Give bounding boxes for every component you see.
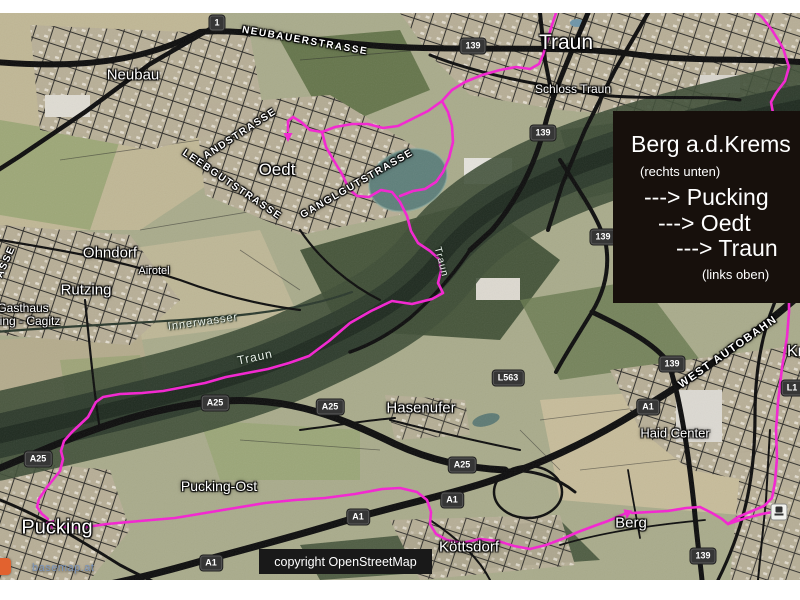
place-label-pucking-ost: Pucking-Ost xyxy=(181,478,257,494)
road-shield-139: 139 xyxy=(590,230,615,245)
route-step-pucking: ---> Pucking xyxy=(644,184,769,211)
road-shield-139: 139 xyxy=(659,357,684,372)
place-label-neubau: Neubau xyxy=(107,67,160,84)
place-label-berg: Berg xyxy=(615,515,647,532)
place-label-rutzing: Rutzing xyxy=(61,282,112,299)
place-label-zing-cagitz: zing - Cagitz xyxy=(0,314,60,328)
place-label-schloss-traun: Schloss Traun xyxy=(535,82,611,96)
route-step-traun: ---> Traun xyxy=(676,235,778,262)
road-shield-1: 1 xyxy=(209,16,224,31)
place-label-pucking: Pucking xyxy=(21,517,92,540)
place-label-oedt: Oedt xyxy=(259,160,296,180)
road-shield-a1: A1 xyxy=(200,556,222,571)
route-description-box: Berg a.d.Krems (rechts unten) ---> Pucki… xyxy=(613,111,800,303)
copyright-banner: copyright OpenStreetMap xyxy=(259,549,432,574)
route-start-title: Berg a.d.Krems xyxy=(631,131,791,158)
road-shield-a1: A1 xyxy=(637,400,659,415)
place-label-airotel: Airotel xyxy=(138,265,169,277)
place-label-traun: Traun xyxy=(539,31,593,55)
road-shield-139: 139 xyxy=(530,126,555,141)
road-shield-139: 139 xyxy=(690,549,715,564)
basemap-attribution-link[interactable]: basemap.at xyxy=(32,562,94,574)
map-canvas[interactable]: InnerwasserTraunTraun NEUBAUERSTRASSELAN… xyxy=(0,13,800,580)
road-shield-l563: L563 xyxy=(493,371,524,386)
train-glyph xyxy=(776,507,783,513)
road-shield-a25: A25 xyxy=(449,458,476,473)
road-shield-139: 139 xyxy=(460,39,485,54)
screenshot-stage: InnerwasserTraunTraun NEUBAUERSTRASSELAN… xyxy=(0,0,800,600)
road-shield-a25: A25 xyxy=(317,400,344,415)
place-label-hasenufer: Hasenufer xyxy=(386,400,455,417)
route-step-oedt: ---> Oedt xyxy=(658,210,751,237)
route-start-note: (rechts unten) xyxy=(640,164,720,179)
place-label-haid-center: Haid Center xyxy=(640,426,709,441)
road-shield-a1: A1 xyxy=(347,510,369,525)
basemap-logo-icon xyxy=(0,558,11,575)
place-label-k-ttsdorf: Köttsdorf xyxy=(439,539,499,556)
road-shield-l1: L1 xyxy=(782,381,800,396)
route-end-note: (links oben) xyxy=(702,267,769,282)
place-label-ohndorf: Ohndorf xyxy=(83,245,137,262)
road-shield-a25: A25 xyxy=(25,452,52,467)
train-station-icon xyxy=(771,504,788,521)
road-shield-a1: A1 xyxy=(441,493,463,508)
place-label-kr: Kr xyxy=(787,343,800,361)
copyright-text: copyright OpenStreetMap xyxy=(274,555,416,569)
road-shield-a25: A25 xyxy=(202,396,229,411)
place-label-gasthaus: Gasthaus xyxy=(0,301,49,315)
